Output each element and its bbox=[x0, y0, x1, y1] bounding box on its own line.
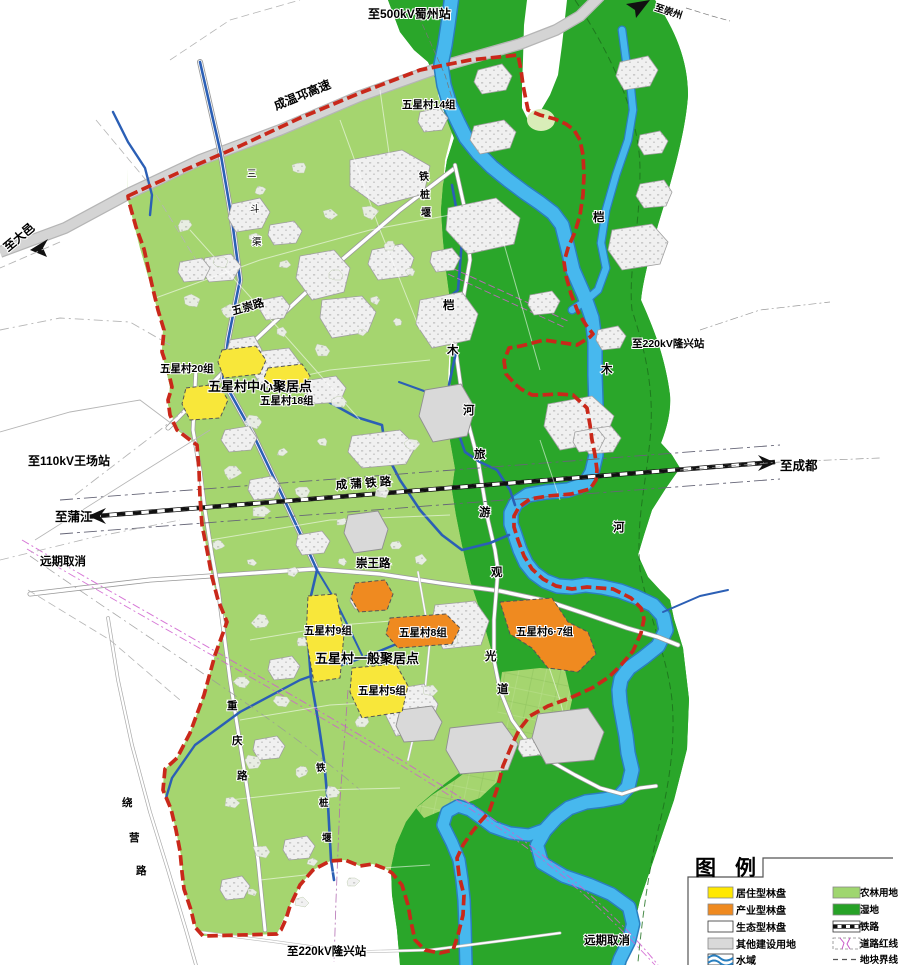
svg-text:铁: 铁 bbox=[316, 762, 326, 774]
svg-text:至220kV隆兴站: 至220kV隆兴站 bbox=[632, 337, 705, 350]
svg-text:农林用地: 农林用地 bbox=[859, 887, 899, 899]
svg-text:铁路: 铁路 bbox=[860, 921, 880, 933]
svg-text:堰: 堰 bbox=[421, 206, 431, 219]
svg-text:营: 营 bbox=[129, 831, 140, 844]
svg-text:湿地: 湿地 bbox=[860, 904, 880, 916]
svg-text:木: 木 bbox=[600, 362, 613, 376]
svg-text:居住型林盘: 居住型林盘 bbox=[736, 887, 786, 900]
svg-text:桤: 桤 bbox=[593, 210, 605, 224]
svg-text:桤: 桤 bbox=[443, 298, 455, 312]
svg-text:五星村18组: 五星村18组 bbox=[260, 394, 314, 407]
svg-text:光: 光 bbox=[484, 649, 497, 663]
svg-text:道路红线: 道路红线 bbox=[860, 938, 899, 950]
svg-text:三: 三 bbox=[247, 169, 257, 180]
svg-text:至220kV隆兴站: 至220kV隆兴站 bbox=[287, 944, 367, 958]
svg-text:至成都: 至成都 bbox=[780, 458, 818, 473]
svg-text:产业型林盘: 产业型林盘 bbox=[736, 904, 786, 917]
svg-text:地块界线: 地块界线 bbox=[860, 954, 899, 965]
svg-text:绕: 绕 bbox=[122, 796, 133, 809]
svg-text:水域: 水域 bbox=[735, 954, 756, 965]
svg-text:河: 河 bbox=[613, 520, 625, 534]
svg-text:五星村9组: 五星村9组 bbox=[304, 624, 352, 637]
svg-text:渠: 渠 bbox=[252, 236, 262, 248]
svg-text:游: 游 bbox=[479, 505, 491, 519]
svg-text:路: 路 bbox=[136, 864, 147, 877]
svg-text:五星村20组: 五星村20组 bbox=[160, 362, 214, 375]
svg-text:河: 河 bbox=[463, 403, 475, 417]
svg-text:至110kV王场站: 至110kV王场站 bbox=[28, 453, 110, 468]
svg-text:铁: 铁 bbox=[419, 170, 429, 183]
svg-text:斗: 斗 bbox=[250, 204, 260, 215]
svg-text:五星村5组: 五星村5组 bbox=[358, 684, 406, 697]
svg-text:五星村中心聚居点: 五星村中心聚居点 bbox=[208, 379, 312, 394]
svg-text:堰: 堰 bbox=[322, 832, 332, 844]
svg-text:五星村一般聚居点: 五星村一般聚居点 bbox=[315, 651, 419, 666]
svg-text:图: 图 bbox=[695, 857, 716, 880]
svg-text:五星村8组: 五星村8组 bbox=[399, 626, 447, 639]
svg-text:崇王路: 崇王路 bbox=[356, 556, 391, 570]
svg-text:远期取消: 远期取消 bbox=[584, 933, 630, 947]
svg-text:庆: 庆 bbox=[231, 734, 243, 747]
svg-text:五星村14组: 五星村14组 bbox=[402, 98, 456, 111]
svg-text:例: 例 bbox=[735, 856, 756, 880]
svg-text:至蒲江: 至蒲江 bbox=[55, 509, 93, 524]
svg-text:木: 木 bbox=[446, 343, 459, 357]
svg-text:观: 观 bbox=[491, 566, 503, 579]
svg-text:道: 道 bbox=[497, 682, 509, 696]
svg-text:旅: 旅 bbox=[474, 447, 486, 461]
svg-text:路: 路 bbox=[237, 769, 248, 782]
svg-text:远期取消: 远期取消 bbox=[40, 554, 86, 568]
svg-text:桩: 桩 bbox=[420, 188, 430, 201]
svg-text:至500kV蜀州站: 至500kV蜀州站 bbox=[368, 6, 451, 21]
svg-text:生态型林盘: 生态型林盘 bbox=[736, 921, 786, 934]
svg-text:五星村6·7组: 五星村6·7组 bbox=[516, 625, 574, 638]
svg-text:其他建设用地: 其他建设用地 bbox=[736, 938, 796, 951]
svg-text:桩: 桩 bbox=[319, 797, 329, 809]
svg-text:重: 重 bbox=[227, 699, 238, 712]
